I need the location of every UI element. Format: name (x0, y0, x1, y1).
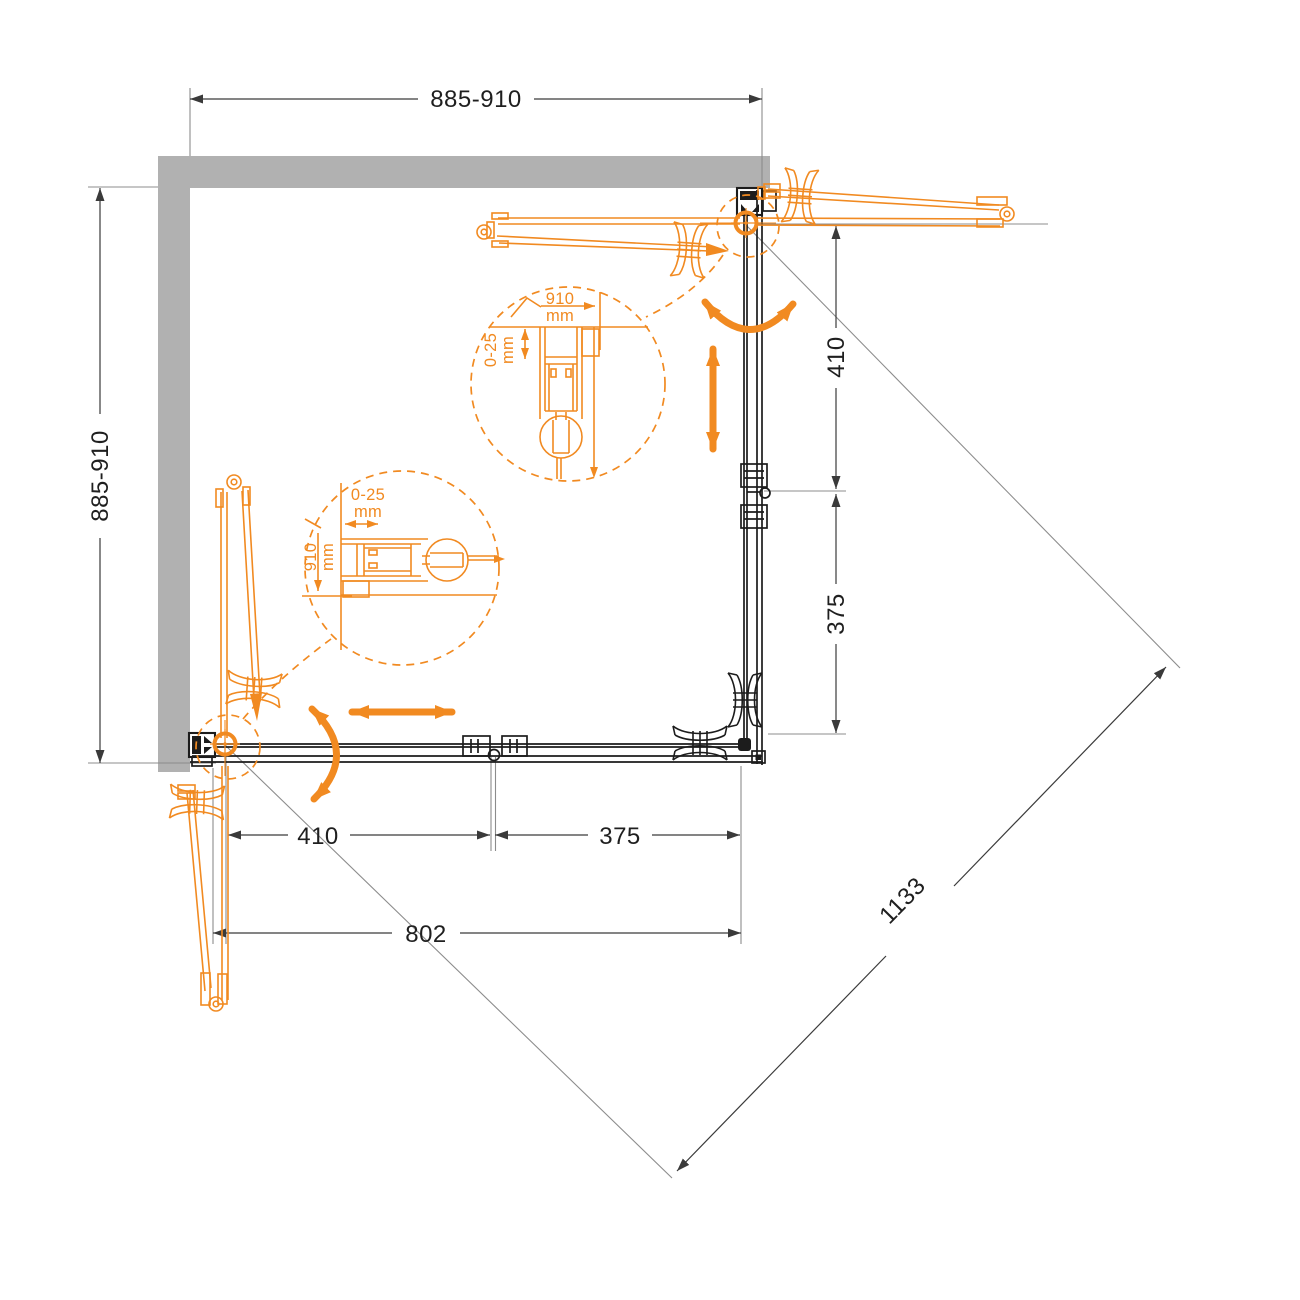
detail-top-width-value: 910 (546, 290, 574, 308)
top-right-door-open-out (757, 168, 1014, 227)
right-panel-bracket (728, 673, 762, 727)
dim-left-depth: 885-910 (87, 430, 114, 522)
detail-top-adjust-value: 0-25 (482, 333, 500, 367)
pivot-dashed-circle (717, 195, 779, 257)
detail-left-width-value: 910 (302, 543, 320, 571)
door-handle-icon (227, 475, 241, 489)
installation-drawing: 885-910 885-910 410 375 410 375 802 1133 (0, 0, 1300, 1300)
bottom-left-door-open-out (169, 766, 228, 1011)
detail-circle-left: 0-25 mm 910 mm (243, 471, 505, 719)
detail-left-width-unit: mm (319, 543, 337, 571)
dim-bottom-door: 410 (297, 823, 339, 850)
door-handle-icon (477, 225, 491, 239)
right-panel-connector (741, 464, 770, 528)
swing-arrow-bottom-icon (312, 709, 337, 799)
door-bracket (169, 784, 224, 820)
dim-bottom-opening: 802 (405, 921, 447, 948)
right-glass-closed (744, 216, 747, 742)
dim-bottom-fixed: 375 (599, 823, 641, 850)
door-bracket (781, 168, 819, 224)
diagonal-extension-top-right (746, 225, 1180, 668)
dimensions: 885-910 885-910 410 375 410 375 802 1133 (87, 86, 1166, 1171)
diagonal-extension-bottom-left (225, 745, 672, 1178)
bottom-panel-bracket (673, 726, 727, 760)
bottom-glass-closed (216, 744, 742, 747)
dim-diagonal-entry: 1133 (874, 872, 931, 929)
corner-connector (738, 738, 765, 763)
detail-top-adjust-unit: mm (499, 336, 517, 364)
dim-right-door: 410 (823, 336, 850, 378)
door-handle-icon (1000, 207, 1014, 221)
fixed-structure (189, 188, 776, 766)
dim-right-fixed: 375 (823, 593, 850, 635)
drawing-page: 885-910 885-910 410 375 410 375 802 1133 (0, 0, 1300, 1300)
extension-lines (88, 88, 1180, 1178)
dim-top-width: 885-910 (430, 86, 522, 113)
wall-top (158, 156, 770, 188)
detail-circle-top: 910 mm 0-25 mm (471, 255, 723, 481)
detail-top-width-unit: mm (546, 307, 574, 325)
bottom-left-door-open-in (216, 475, 282, 738)
detail-left-adjust-value: 0-25 (351, 486, 385, 504)
wall-profile-bottom-left (189, 733, 215, 766)
wall-left (158, 188, 190, 772)
detail-left-adjust-unit: mm (354, 503, 382, 521)
swing-arrow-top-icon (705, 302, 793, 330)
